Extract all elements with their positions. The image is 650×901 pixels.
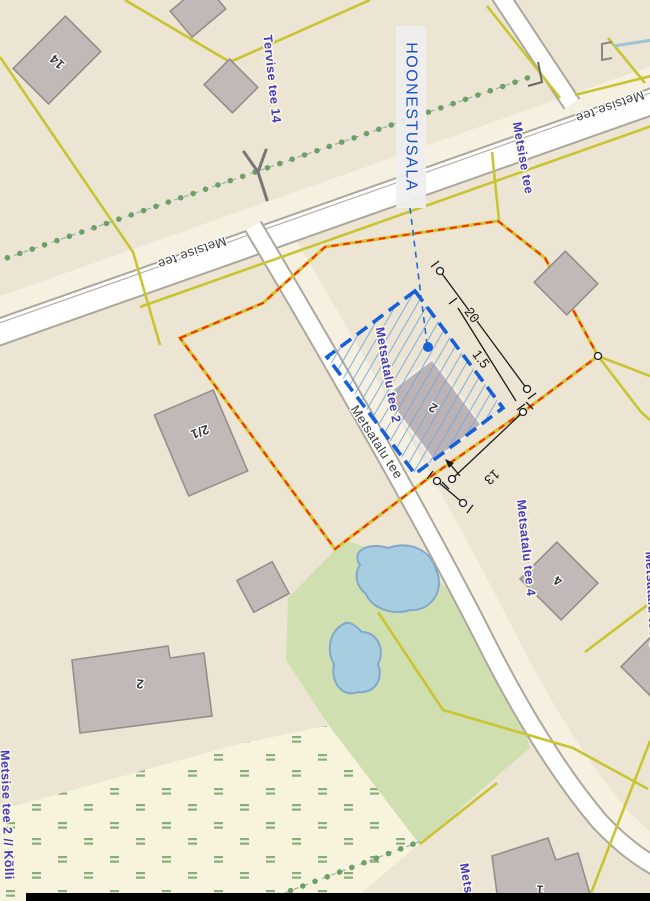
hoonestusala-label: HOONESTUSALA [403, 42, 420, 192]
building-2-number: 2 [136, 676, 145, 692]
bottom-bar [26, 893, 650, 901]
map-canvas[interactable]: HOONESTUSALA 20 1.5 13 14 2/1 2 2 4 1 Me… [0, 0, 650, 901]
map-viewport[interactable]: HOONESTUSALA 20 1.5 13 14 2/1 2 2 4 1 Me… [0, 0, 650, 901]
leader-dot [423, 342, 433, 352]
